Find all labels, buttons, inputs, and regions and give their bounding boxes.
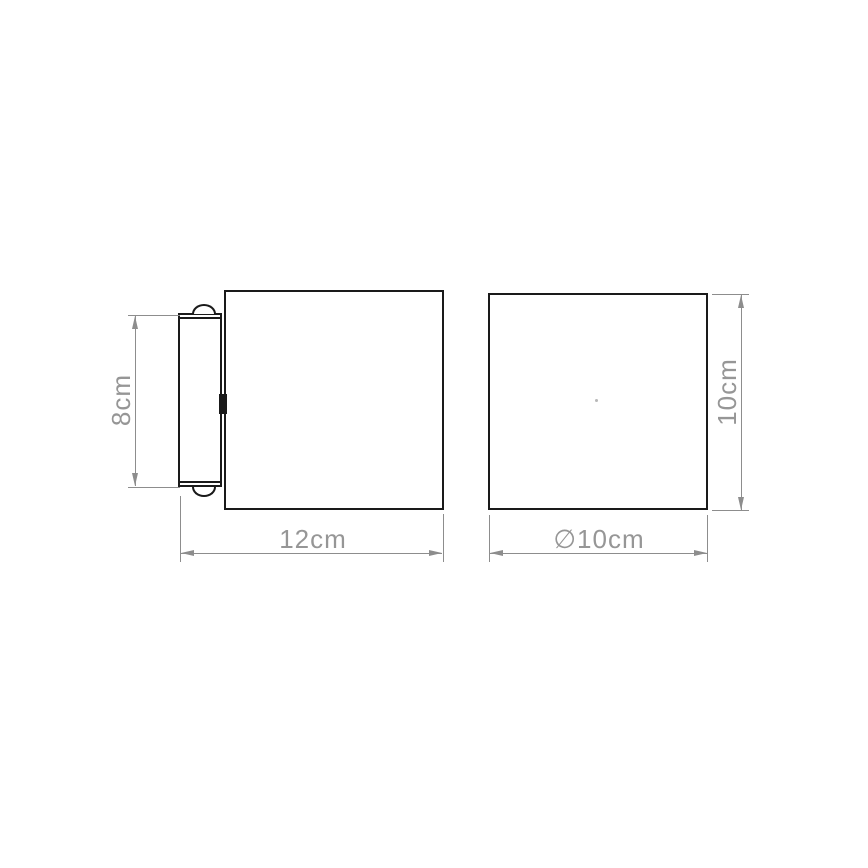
arrow-left-icon [490, 550, 503, 556]
arrow-down-icon [738, 497, 744, 510]
arrow-down-icon [132, 473, 138, 486]
bracket-bottom-inner-line [180, 481, 220, 483]
extension-line [443, 514, 444, 562]
arrow-up-icon [738, 295, 744, 308]
bracket-top-inner-line [180, 317, 220, 319]
dim-label-height: 8cm [108, 374, 134, 426]
dimension-drawing-canvas: 8cm 12cm 10cm [0, 0, 868, 868]
front-view-body [488, 293, 708, 510]
wall-bracket [178, 313, 222, 487]
extension-line [707, 515, 708, 562]
center-mark-dot [595, 399, 598, 402]
arrow-left-icon [181, 550, 194, 556]
bottom-screw-icon [192, 487, 216, 497]
side-view-body [224, 290, 444, 510]
extension-line [712, 510, 749, 511]
dim-label-width: 12cm [279, 526, 347, 552]
arrow-right-icon [694, 550, 707, 556]
dim-label-diameter: ∅10cm [553, 526, 644, 552]
dim-label-height: 10cm [714, 358, 740, 426]
extension-line [128, 487, 180, 488]
top-screw-icon [192, 304, 216, 314]
arrow-right-icon [429, 550, 442, 556]
connector-notch [219, 394, 227, 414]
arrow-up-icon [132, 316, 138, 329]
